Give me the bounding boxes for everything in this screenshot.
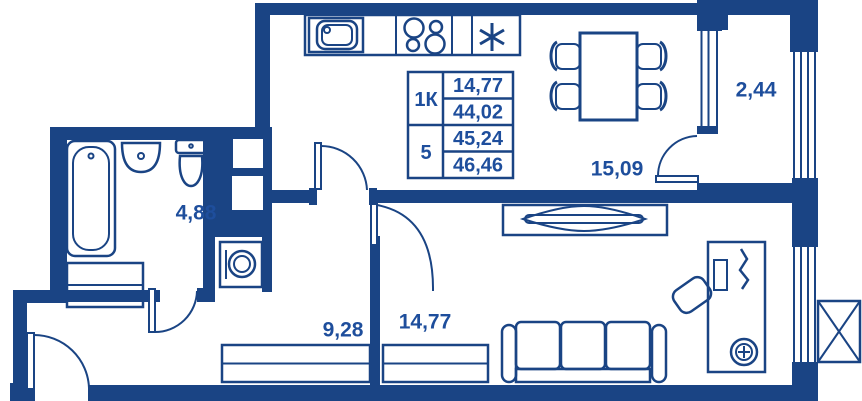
stamp-table: 1К 14,77 44,02 5 45,24 46,46: [408, 72, 513, 178]
kitchen-door: [315, 143, 367, 190]
toilet: [176, 140, 206, 186]
fridge-asterisk-icon: [480, 23, 504, 51]
vent-shaft: [233, 139, 263, 168]
dining-table: [580, 33, 637, 120]
washing-machine: [220, 242, 262, 287]
floor-plan: 1К 14,77 44,02 5 45,24 46,46 15,09 2,44 …: [0, 0, 862, 401]
tv-stand: [503, 205, 667, 235]
stamp-value: 14,77: [453, 75, 503, 97]
ac-unit-box: [818, 301, 860, 362]
balcony-area-label: 2,44: [736, 79, 777, 102]
balcony-left-window: [702, 30, 718, 126]
living-room-door: [371, 204, 433, 291]
walls: [10, 0, 818, 401]
dining-chair: [551, 82, 580, 110]
stamp-flat-type: 1К: [414, 89, 438, 111]
stamp-value: 46,46: [453, 155, 503, 177]
vent-shaft: [232, 176, 263, 210]
wardrobe: [222, 345, 370, 382]
bathroom-sink: [122, 143, 160, 172]
dining-chair: [637, 82, 666, 110]
living-room-window: [794, 247, 815, 362]
dining-chair: [551, 42, 580, 70]
dining-chair: [637, 42, 666, 70]
wardrobe: [383, 345, 488, 382]
living-room-area-label: 14,77: [399, 311, 452, 334]
hallway-area-label: 9,28: [323, 319, 364, 342]
sofa: [502, 322, 666, 382]
stamp-flat-number: 5: [420, 142, 431, 164]
stamp-value: 44,02: [453, 102, 503, 124]
stove: [405, 19, 445, 54]
stamp-value: 45,24: [453, 128, 504, 150]
desk: [708, 242, 765, 372]
balcony-door: [656, 136, 698, 182]
bathroom-area-label: 4,88: [176, 202, 217, 225]
kitchen-area-label: 15,09: [591, 158, 644, 181]
bathtub: [67, 141, 115, 256]
kitchen-sink: [309, 18, 363, 52]
balcony-right-window: [794, 52, 815, 178]
entrance-door: [27, 333, 89, 389]
